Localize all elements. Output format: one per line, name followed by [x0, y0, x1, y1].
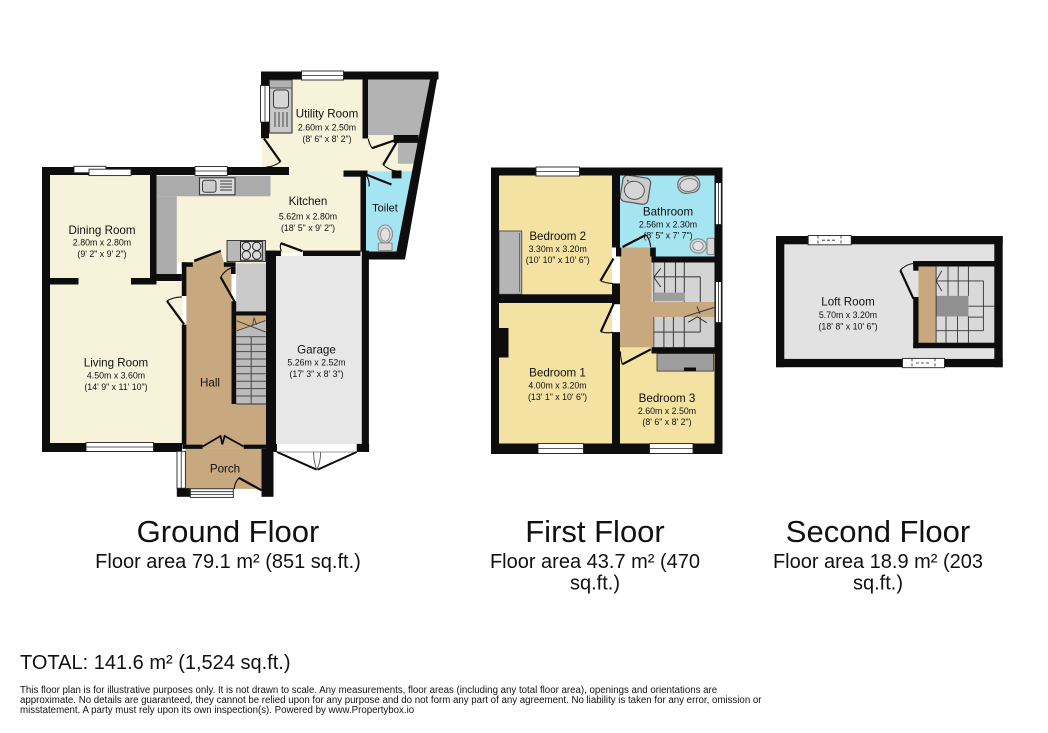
svg-text:Loft Room: Loft Room [821, 296, 875, 309]
svg-text:Bedroom 2: Bedroom 2 [529, 230, 586, 243]
svg-text:(14' 9" x 11' 10"): (14' 9" x 11' 10") [84, 382, 147, 392]
svg-text:Bedroom 1: Bedroom 1 [529, 367, 586, 380]
svg-text:First Floor: First Floor [525, 514, 665, 549]
svg-text:4.00m x 3.20m: 4.00m x 3.20m [528, 380, 586, 390]
svg-text:Ground Floor: Ground Floor [137, 514, 320, 549]
svg-text:(18' 5" x 9' 2"): (18' 5" x 9' 2") [281, 223, 335, 233]
svg-text:2.80m x 2.80m: 2.80m x 2.80m [73, 238, 131, 248]
svg-text:2.56m x 2.30m: 2.56m x 2.30m [639, 219, 697, 229]
svg-text:5.70m x 3.20m: 5.70m x 3.20m [819, 310, 877, 320]
svg-text:TOTAL: 141.6 m² (1,524 sq.ft.): TOTAL: 141.6 m² (1,524 sq.ft.) [20, 652, 290, 674]
svg-text:(8' 6" x 8' 2"): (8' 6" x 8' 2") [302, 134, 351, 144]
svg-text:(18' 8" x 10' 6"): (18' 8" x 10' 6") [819, 322, 878, 332]
svg-text:(8' 6" x 8' 2"): (8' 6" x 8' 2") [642, 417, 691, 427]
svg-text:Hall: Hall [200, 377, 220, 390]
svg-text:Floor area 79.1 m² (851 sq.ft.: Floor area 79.1 m² (851 sq.ft.) [95, 551, 361, 573]
svg-text:Dining Room: Dining Room [68, 224, 135, 237]
svg-text:Bathroom: Bathroom [643, 206, 693, 219]
svg-text:Bedroom 3: Bedroom 3 [639, 392, 696, 405]
svg-text:2.60m x 2.50m: 2.60m x 2.50m [638, 406, 696, 416]
svg-text:(17' 3" x 8' 3"): (17' 3" x 8' 3") [289, 369, 343, 379]
svg-text:(13' 1" x 10' 6"): (13' 1" x 10' 6") [528, 392, 587, 402]
svg-text:Garage: Garage [297, 344, 336, 357]
svg-text:(10' 10" x 10' 6"): (10' 10" x 10' 6") [526, 255, 590, 265]
svg-text:sq.ft.): sq.ft.) [570, 573, 620, 595]
svg-text:2.60m x 2.50m: 2.60m x 2.50m [298, 123, 356, 133]
svg-text:Living Room: Living Room [84, 357, 148, 370]
svg-text:Toilet: Toilet [372, 203, 398, 215]
svg-text:(9' 2" x 9' 2"): (9' 2" x 9' 2") [77, 249, 126, 259]
svg-text:Porch: Porch [210, 463, 240, 476]
svg-text:5.26m x 2.52m: 5.26m x 2.52m [287, 357, 345, 367]
svg-text:misstatement. A party must rel: misstatement. A party must rely upon its… [20, 705, 414, 716]
svg-text:Utility Room: Utility Room [296, 108, 359, 121]
svg-text:Kitchen: Kitchen [289, 195, 328, 208]
svg-text:Floor area 18.9 m² (203: Floor area 18.9 m² (203 [773, 551, 983, 573]
svg-text:sq.ft.): sq.ft.) [853, 573, 903, 595]
svg-text:3.30m x 3.20m: 3.30m x 3.20m [529, 244, 587, 254]
svg-text:Floor area 43.7 m² (470: Floor area 43.7 m² (470 [490, 551, 700, 573]
svg-text:Second Floor: Second Floor [786, 514, 970, 549]
svg-text:4.50m x 3.60m: 4.50m x 3.60m [87, 371, 145, 381]
svg-text:5.62m x 2.80m: 5.62m x 2.80m [279, 212, 337, 222]
svg-text:(8' 5" x 7' 7"): (8' 5" x 7' 7") [643, 231, 692, 241]
